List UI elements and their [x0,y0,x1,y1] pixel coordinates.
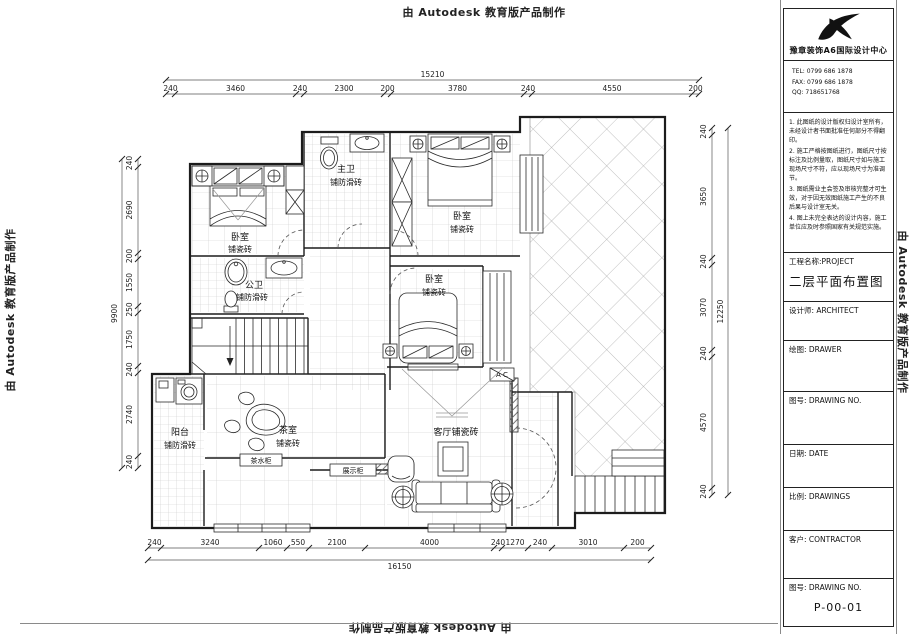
date-section: 日期: DATE [784,445,893,489]
drawing-title: 二层平面布置图 [789,271,888,290]
dimension-value: 3010 [578,538,597,547]
dimensions-left: 24026902001550250175024027402409900 [110,156,141,471]
dimension-value: 4000 [420,538,439,547]
contractor-label: 客户: CONTRACTOR [789,534,888,545]
dimension-total: 16150 [388,562,412,571]
project-label: 工程名称:PROJECT [789,256,888,267]
dimension-value: 200 [630,538,645,547]
drawing-number: P-00-01 [789,601,888,614]
architect-label: 设计师: ARCHITECT [789,305,888,316]
floor-plan: 卧室 铺瓷砖 主卫 铺防滑砖 卧室 铺瓷砖 公卫 铺防滑砖 卧室 铺瓷砖 阳台 … [0,0,783,634]
dimension-value: 200 [125,249,134,264]
dimensions-bottom: 2403240106055021004000240127024030102001… [145,538,654,571]
title-block-logo-section: 豫章装饰A6国际设计中心 [784,9,893,61]
note-1: 1. 此图纸的设计版权归设计室所有，未经设计者书面批准任何部分不得翻印。 [789,118,888,145]
label-ac: A C [496,371,508,379]
scale-section: 比例: DRAWINGS [784,488,893,531]
dimension-value: 2690 [125,200,134,219]
dimension-value: 240 [491,538,506,547]
dimension-value: 4570 [699,413,708,432]
scale-label: 比例: DRAWINGS [789,491,888,502]
contact-section: TEL: 0799 686 1878 FAX: 0799 686 1878 QQ… [784,61,893,113]
dimension-total: 12250 [716,299,725,323]
dimension-value: 240 [125,455,134,470]
room-label-living: 客厅铺瓷砖 [433,426,478,438]
floor-label-public-bath: 铺防滑砖 [236,292,268,302]
drawing-number-section: 图号: DRAWING NO. P-00-01 [784,579,893,626]
drawer-label: 绘图: DRAWER [789,344,888,355]
room-label-public-bath: 公卫 [245,280,263,291]
dimension-value: 3650 [699,187,708,206]
drawing-no-label-2: 图号: DRAWING NO. [789,582,888,593]
label-display-cabinet: 展示柜 [343,466,364,475]
dimension-value: 240 [293,84,308,93]
drawing-no-label: 图号: DRAWING NO. [789,395,888,406]
dimension-value: 550 [291,538,306,547]
balcony [156,378,202,404]
dimension-value: 1060 [263,538,282,547]
dimension-value: 200 [688,84,703,93]
floor-label-balcony: 铺防滑砖 [164,440,196,450]
note-3: 3. 图纸需业主会签及审核完整才可生效，对于因无效图纸施工产生的不良后果与设计室… [789,185,888,212]
room-label-bedroom-mid: 卧室 [425,273,443,285]
dimension-value: 240 [699,254,708,269]
dimension-value: 240 [125,156,134,171]
dimension-value: 240 [699,124,708,139]
room-label-balcony: 阳台 [171,426,189,438]
floor-label-bedroom-tr: 铺瓷砖 [450,224,474,234]
room-label-bedroom-tl: 卧室 [231,231,249,243]
tel-line: TEL: 0799 686 1878 [792,67,888,78]
room-label-tea-room: 茶室 [279,424,297,436]
drawer-section: 绘图: DRAWER [784,341,893,392]
note-4: 4. 图上未完全表达的设计内容，施工单位应及时参照国家有关规范实施。 [789,214,888,232]
qq-line: QQ: 718651768 [792,88,888,99]
dimension-value: 240 [699,484,708,499]
floor-label-bedroom-tl: 铺瓷砖 [228,244,252,254]
dimension-value: 3460 [226,84,245,93]
floor-label-master-bath: 铺防滑砖 [330,177,362,187]
dimension-value: 240 [521,84,536,93]
floor-label-bedroom-mid: 铺瓷砖 [422,287,446,297]
drawing-no-section: 图号: DRAWING NO. [784,392,893,445]
dimension-value: 3240 [200,538,219,547]
dimension-value: 240 [147,538,162,547]
dimension-value: 3780 [448,84,467,93]
dimension-value: 240 [125,362,134,377]
autodesk-watermark-right: 由 Autodesk 教育版产品制作 [895,230,910,393]
project-section: 工程名称:PROJECT 二层平面布置图 [784,253,893,302]
company-logo [810,12,868,44]
dimension-value: 240 [699,346,708,361]
dimension-value: 240 [163,84,178,93]
dimension-value: 1550 [125,273,134,292]
dimension-value: 250 [125,302,134,317]
fax-line: FAX: 0799 686 1878 [792,78,888,89]
dimension-value: 3070 [699,298,708,317]
dimension-value: 200 [380,84,395,93]
dimension-value: 2100 [327,538,346,547]
architect-section: 设计师: ARCHITECT [784,302,893,341]
dimension-value: 1270 [505,538,524,547]
title-block: 豫章装饰A6国际设计中心 TEL: 0799 686 1878 FAX: 079… [783,8,894,627]
dimension-value: 1750 [125,330,134,349]
staircase [192,318,308,374]
dimension-total: 9900 [110,304,119,323]
contractor-section: 客户: CONTRACTOR [784,531,893,579]
notes-section: 1. 此图纸的设计版权归设计室所有，未经设计者书面批准任何部分不得翻印。 2. … [784,113,893,254]
sheet-right-border [896,0,897,634]
note-2: 2. 施工严格按图纸进行，图纸尺寸按标注及比例量取，图纸尺寸如与施工现场尺寸不符… [789,147,888,183]
dimensions-right: 24036502403070240457024012250 [699,124,731,499]
dimensions-top: 240346024023002003780240455020015210 [163,70,703,97]
date-label: 日期: DATE [789,448,888,459]
dimension-value: 4550 [602,84,621,93]
room-label-master-bath: 主卫 [337,163,355,175]
floor-label-tea-room: 铺瓷砖 [276,438,300,448]
label-tea-cabinet: 茶水柜 [251,456,272,465]
room-label-bedroom-tr: 卧室 [453,210,471,222]
dimension-value: 240 [533,538,548,547]
dimension-value: 2300 [334,84,353,93]
drawing-sheet: 由 Autodesk 教育版产品制作 由 Autodesk 教育版产品制作 由 … [0,0,910,634]
dimension-total: 15210 [421,70,445,79]
company-name: 豫章装饰A6国际设计中心 [790,45,888,56]
dimension-value: 2740 [125,405,134,424]
